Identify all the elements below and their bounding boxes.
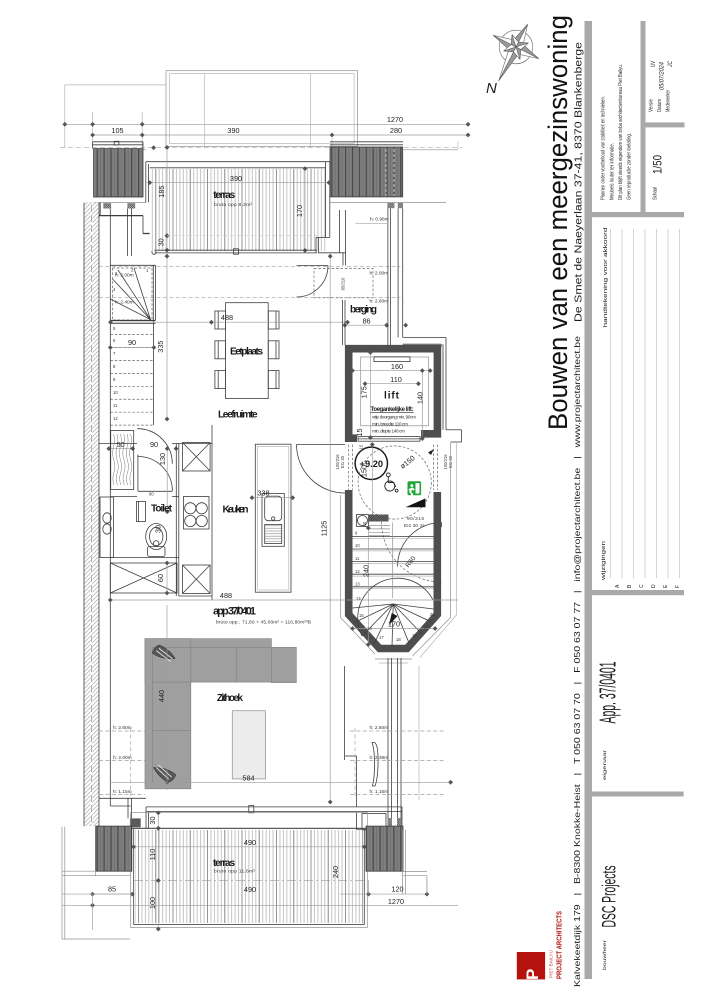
svg-text:Kalvekeetdijk 179 | B-8300: Kalvekeetdijk 179 | B-8300 Knokke-Heist … xyxy=(572,336,582,987)
svg-text:21: 21 xyxy=(430,612,435,617)
svg-text:F: F xyxy=(675,585,681,588)
svg-text:PIET BAILYU: PIET BAILYU xyxy=(549,950,554,978)
svg-text:1/50: 1/50 xyxy=(651,155,665,174)
svg-text:min. diepte 140 cm: min. diepte 140 cm xyxy=(372,428,405,434)
svg-text:85: 85 xyxy=(108,884,116,893)
svg-text:h: 2.00m: h: 2.00m xyxy=(115,273,134,279)
svg-text:30: 30 xyxy=(154,525,163,533)
svg-text:86: 86 xyxy=(362,316,370,325)
svg-text:390: 390 xyxy=(230,174,242,183)
svg-text:DSC Projects: DSC Projects xyxy=(600,866,621,928)
svg-text:584: 584 xyxy=(242,774,254,783)
svg-text:240: 240 xyxy=(331,866,340,878)
svg-text:D: D xyxy=(651,584,657,588)
svg-text:90: 90 xyxy=(150,440,158,449)
svg-text:h: 1.15m: h: 1.15m xyxy=(113,789,132,795)
svg-text:15: 15 xyxy=(359,444,364,449)
svg-text:Leefruimte: Leefruimte xyxy=(218,410,258,421)
svg-text:h: 2.38m: h: 2.38m xyxy=(370,755,389,761)
svg-text:handtekening voor akkoord: handtekening voor akkoord xyxy=(603,227,609,327)
svg-text:240: 240 xyxy=(361,565,370,577)
svg-text:1270: 1270 xyxy=(387,115,403,124)
svg-text:h: 0.98m: h: 0.98m xyxy=(370,217,389,223)
svg-text:app 37/0401: app 37/0401 xyxy=(213,606,256,618)
svg-text:280: 280 xyxy=(390,126,402,135)
svg-text:160: 160 xyxy=(391,362,403,371)
svg-text:C: C xyxy=(639,584,645,588)
svg-text:40: 40 xyxy=(362,521,367,526)
svg-text:440: 440 xyxy=(157,690,166,702)
svg-text:140: 140 xyxy=(415,392,424,404)
svg-text:Bouwen van een meergezinswonin: Bouwen van een meergezinswoning xyxy=(543,15,573,430)
svg-text:16: 16 xyxy=(367,626,372,631)
svg-text:Dit plan blijft steeds eigendo: Dit plan blijft steeds eigendom van bvba… xyxy=(618,64,624,200)
svg-text:wijzigingen: wijzigingen xyxy=(601,541,607,580)
svg-text:30: 30 xyxy=(156,238,165,246)
svg-text:05/07/2024: 05/07/2024 xyxy=(659,62,666,90)
svg-text:110: 110 xyxy=(148,849,157,861)
svg-text:488: 488 xyxy=(220,591,232,600)
svg-text:Keuken: Keuken xyxy=(223,505,249,516)
svg-text:120: 120 xyxy=(391,884,403,893)
svg-text:60: 60 xyxy=(156,574,165,582)
svg-text:bruto opp.: 71,80 + 45,00m² =: bruto opp.: 71,80 + 45,00m² = 116,80m²³B xyxy=(216,620,311,626)
svg-text:Toegankelijke lift:: Toegankelijke lift: xyxy=(371,407,414,413)
svg-text:10: 10 xyxy=(113,390,118,395)
svg-text:Meubels louter ter informatie.: Meubels louter ter informatie. xyxy=(610,143,616,200)
svg-text:90: 90 xyxy=(149,492,154,497)
svg-text:11: 11 xyxy=(355,556,360,561)
svg-text:Medewerker: Medewerker xyxy=(666,90,672,112)
svg-text:h: 1.15m: h: 1.15m xyxy=(370,789,389,795)
svg-text:lift: lift xyxy=(384,391,400,402)
svg-text:terras: terras xyxy=(213,858,235,869)
svg-text:490: 490 xyxy=(244,838,256,847)
svg-text:min. breedte 110 cm: min. breedte 110 cm xyxy=(372,421,408,427)
svg-text:Toilet: Toilet xyxy=(151,504,173,515)
svg-text:PROJECT ARCHITECTS: PROJECT ARCHITECTS xyxy=(557,911,564,979)
svg-text:10: 10 xyxy=(355,543,360,548)
svg-text:170: 170 xyxy=(295,205,304,217)
svg-text:490: 490 xyxy=(244,885,256,894)
svg-text:110: 110 xyxy=(390,375,402,384)
svg-text:90: 90 xyxy=(128,338,136,347)
svg-text:170: 170 xyxy=(388,620,400,629)
svg-text:85/216: 85/216 xyxy=(340,277,345,290)
svg-text:bruto opp 11,6m²: bruto opp 11,6m² xyxy=(214,869,255,875)
svg-text:15: 15 xyxy=(355,428,364,436)
svg-text:17: 17 xyxy=(379,635,384,640)
svg-text:terras: terras xyxy=(213,190,235,201)
svg-text:15: 15 xyxy=(359,613,364,618)
svg-text:488: 488 xyxy=(221,313,233,322)
svg-text:175: 175 xyxy=(360,386,369,398)
svg-text:1270: 1270 xyxy=(388,897,404,906)
svg-text:JC: JC xyxy=(667,61,674,68)
svg-text:vrije doorgang min. 90cm: vrije doorgang min. 90cm xyxy=(372,414,416,420)
svg-text:Versie: Versie xyxy=(649,99,655,112)
svg-text:h: 2.00m: h: 2.00m xyxy=(370,271,389,277)
svg-text:h: 2.60m: h: 2.60m xyxy=(370,725,389,731)
svg-text:Geen reproductie zonder toelat: Geen reproductie zonder toelating. xyxy=(627,133,633,200)
svg-text:19: 19 xyxy=(412,633,417,638)
svg-text:Plannen onder voorbehoud van s: Plannen onder voorbehoud van stabiliteit… xyxy=(601,96,607,200)
svg-text:h: 2.60m: h: 2.60m xyxy=(113,725,132,731)
svg-text:App. 37/0401: App. 37/0401 xyxy=(595,662,621,724)
svg-text:EI1 30: EI1 30 xyxy=(404,523,418,529)
svg-text:EI1 30: EI1 30 xyxy=(340,455,345,468)
svg-text:Schaal: Schaal xyxy=(653,187,659,200)
svg-text:berging: berging xyxy=(350,304,377,315)
svg-text:13: 13 xyxy=(355,582,360,587)
svg-text:20: 20 xyxy=(424,625,429,630)
svg-text:335: 335 xyxy=(156,341,165,353)
svg-text:150: 150 xyxy=(359,465,368,477)
svg-text:P: P xyxy=(523,969,542,980)
svg-text:90/216: 90/216 xyxy=(407,516,424,522)
svg-text:30: 30 xyxy=(148,816,157,824)
svg-text:eigenaar: eigenaar xyxy=(602,749,607,780)
svg-text:130: 130 xyxy=(158,453,167,465)
svg-text:12: 12 xyxy=(355,569,360,574)
svg-text:h: 2.00m: h: 2.00m xyxy=(113,755,132,761)
svg-text:bruto opp 8,2m²: bruto opp 8,2m² xyxy=(214,202,252,208)
svg-text:bouwheer: bouwheer xyxy=(602,939,607,970)
svg-text:185: 185 xyxy=(157,186,166,198)
svg-text:Datum: Datum xyxy=(657,99,663,112)
svg-text:UV: UV xyxy=(650,61,657,67)
svg-text:Zithoek: Zithoek xyxy=(217,693,243,704)
svg-text:N: N xyxy=(486,80,497,97)
svg-text:12: 12 xyxy=(113,416,118,421)
svg-text:100: 100 xyxy=(148,897,157,909)
svg-text:105: 105 xyxy=(111,126,123,135)
svg-text:338: 338 xyxy=(257,489,269,498)
svg-text:390: 390 xyxy=(227,126,239,135)
svg-text:De Smet de Naeyerlaan 37-41, 8: De Smet de Naeyerlaan 37-41, 8370 Blanke… xyxy=(574,41,585,322)
svg-text:11: 11 xyxy=(113,403,118,408)
svg-text:Eetplaats: Eetplaats xyxy=(230,347,263,358)
svg-text:1125: 1125 xyxy=(320,521,329,537)
svg-text:18: 18 xyxy=(396,637,401,642)
